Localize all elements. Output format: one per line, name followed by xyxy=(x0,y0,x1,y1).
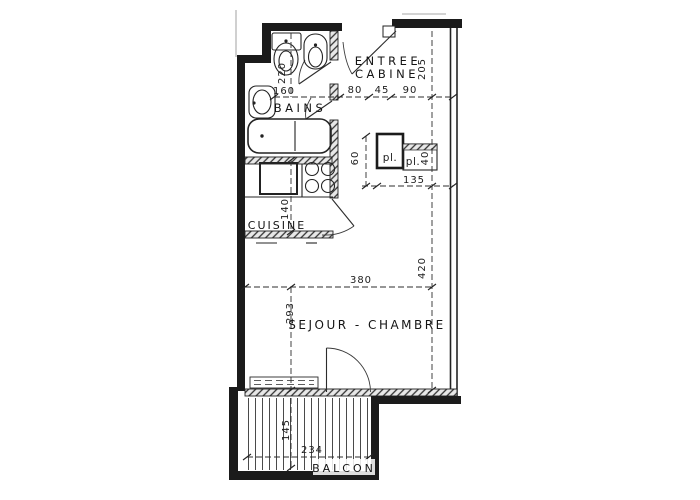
wall-cabine-entree-mid xyxy=(330,84,338,100)
wall-cabine-entree-upper xyxy=(330,31,338,60)
room-label-sejour: SEJOUR - CHAMBRE xyxy=(288,318,445,332)
bottom-wall-right xyxy=(371,396,461,404)
dim-234: 234 xyxy=(301,445,323,456)
balcony-left-wall xyxy=(229,387,238,480)
dim-60: 60 xyxy=(350,151,361,166)
bidet-dot xyxy=(314,43,317,46)
hob-burner-3 xyxy=(306,180,319,193)
cabine-door-leaf xyxy=(299,62,331,84)
dim-80: 80 xyxy=(348,85,363,96)
top-wall-left xyxy=(262,23,342,31)
room-label-bains: BAINS xyxy=(274,101,327,115)
dim-420: 420 xyxy=(417,257,428,279)
dim-145: 145 xyxy=(281,419,292,441)
balcony-door-arc xyxy=(327,348,371,392)
bidet xyxy=(304,34,327,69)
entry-door-jamb xyxy=(383,26,395,37)
washbasin-dot xyxy=(252,101,255,104)
dim-45: 45 xyxy=(375,85,390,96)
floor-plan-page: 160 80 45 90 205 220 60 40 135 140 380 4… xyxy=(0,0,700,500)
entry-door-arc xyxy=(343,42,352,74)
dim-380: 380 xyxy=(350,275,372,286)
top-wall-right xyxy=(392,19,462,28)
floor-plan-drawing: 160 80 45 90 205 220 60 40 135 140 380 4… xyxy=(0,0,700,500)
dim-140: 140 xyxy=(280,198,291,220)
room-label-cabine: CABINE xyxy=(355,67,419,81)
radiator xyxy=(250,377,318,388)
dim-160: 160 xyxy=(273,86,295,97)
cuisine-door-leaf xyxy=(332,199,354,226)
dim-40: 40 xyxy=(420,151,431,166)
toilet-tank-dot xyxy=(284,39,287,42)
dim-220: 220 xyxy=(277,62,288,84)
bidet-inner xyxy=(309,47,323,67)
closet-right-label: pl. xyxy=(406,156,420,168)
closet-left-label: pl. xyxy=(383,152,397,164)
dim-90: 90 xyxy=(403,85,418,96)
window-band-south xyxy=(245,389,457,396)
bathtub-drain-dot xyxy=(260,134,263,137)
room-label-balcon: BALCON xyxy=(312,462,376,475)
room-label-cuisine: CUISINE xyxy=(248,219,306,232)
washbasin-inner xyxy=(253,90,271,114)
wall-cuisine-sejour xyxy=(245,231,333,238)
left-wall xyxy=(237,55,245,391)
dim-135: 135 xyxy=(403,175,425,186)
room-label-entree: ENTREE xyxy=(355,54,421,68)
